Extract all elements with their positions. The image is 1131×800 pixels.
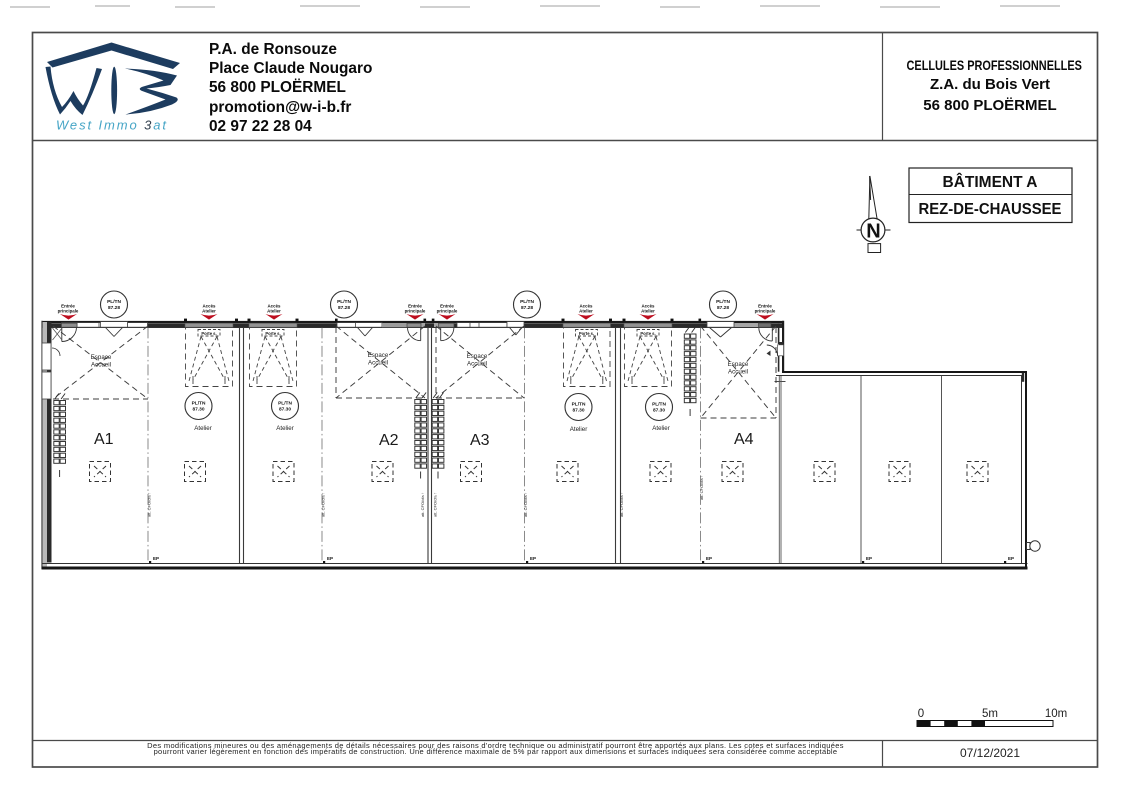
svg-text:Espace: Espace — [368, 352, 389, 359]
svg-text:att. CFO/cfa ↑: att. CFO/cfa ↑ — [699, 475, 704, 500]
svg-text:principale: principale — [58, 309, 79, 314]
svg-text:att. CFO/cfa ↑: att. CFO/cfa ↑ — [619, 492, 624, 517]
svg-text:principale: principale — [755, 309, 776, 314]
svg-text:A3: A3 — [470, 432, 490, 449]
svg-text:Atelier: Atelier — [202, 309, 216, 314]
svg-text:87.28: 87.28 — [108, 305, 120, 311]
svg-text:att. CFO/cfa ↑: att. CFO/cfa ↑ — [420, 492, 425, 517]
svg-text:Porte s.: Porte s. — [640, 331, 655, 336]
svg-text:Atelier: Atelier — [194, 425, 212, 432]
svg-text:Atelier: Atelier — [579, 309, 593, 314]
svg-text:Espace: Espace — [467, 353, 488, 360]
svg-text:PL/TN: PL/TN — [520, 299, 534, 305]
svg-text:att. CFO/cfa ↑: att. CFO/cfa ↑ — [321, 492, 326, 517]
svg-text:PL/TN: PL/TN — [652, 402, 666, 408]
svg-text:PL/TN: PL/TN — [716, 299, 730, 305]
svg-text:EP: EP — [1008, 556, 1014, 561]
svg-text:Atelier: Atelier — [267, 309, 281, 314]
svg-text:EP: EP — [327, 556, 333, 561]
svg-text:A4: A4 — [734, 431, 754, 448]
svg-text:87.30: 87.30 — [572, 408, 584, 414]
svg-text:Accueil: Accueil — [368, 360, 388, 367]
svg-text:EP: EP — [866, 556, 872, 561]
svg-text:87.30: 87.30 — [279, 407, 291, 413]
svg-text:PL/TN: PL/TN — [107, 299, 121, 305]
svg-text:87.30: 87.30 — [192, 407, 204, 413]
svg-text:Accueil: Accueil — [467, 361, 487, 368]
svg-text:att. CFO/cfa ↑: att. CFO/cfa ↑ — [147, 492, 152, 517]
svg-text:PL/TN: PL/TN — [572, 402, 586, 408]
svg-text:Porte s.: Porte s. — [201, 331, 216, 336]
svg-text:Atelier: Atelier — [276, 425, 294, 432]
svg-text:Espace: Espace — [728, 361, 749, 368]
svg-text:PL/TN: PL/TN — [192, 401, 206, 407]
svg-text:87.28: 87.28 — [521, 305, 533, 311]
svg-text:PL/TN: PL/TN — [337, 299, 351, 305]
svg-text:87.28: 87.28 — [717, 305, 729, 311]
svg-text:Atelier: Atelier — [652, 425, 670, 432]
svg-text:EP: EP — [706, 556, 712, 561]
svg-text:principale: principale — [405, 309, 426, 314]
svg-text:Atelier: Atelier — [641, 309, 655, 314]
svg-text:att. CFO/cfa ↑: att. CFO/cfa ↑ — [523, 492, 528, 517]
svg-text:principale: principale — [437, 309, 458, 314]
svg-text:EP: EP — [530, 556, 536, 561]
svg-text:87.30: 87.30 — [653, 408, 665, 414]
svg-text:Accueil: Accueil — [91, 362, 111, 369]
svg-text:87.28: 87.28 — [338, 305, 350, 311]
svg-text:att. CFO/cfa ↑: att. CFO/cfa ↑ — [433, 492, 438, 517]
svg-text:Accueil: Accueil — [728, 369, 748, 376]
svg-text:A2: A2 — [379, 432, 399, 449]
svg-text:Espace: Espace — [91, 354, 112, 361]
svg-text:PL/TN: PL/TN — [278, 401, 292, 407]
svg-text:Porte s.: Porte s. — [579, 331, 594, 336]
svg-text:Atelier: Atelier — [570, 426, 588, 433]
svg-text:Porte s.: Porte s. — [265, 331, 280, 336]
svg-text:A1: A1 — [94, 431, 114, 448]
svg-text:EP: EP — [153, 556, 159, 561]
